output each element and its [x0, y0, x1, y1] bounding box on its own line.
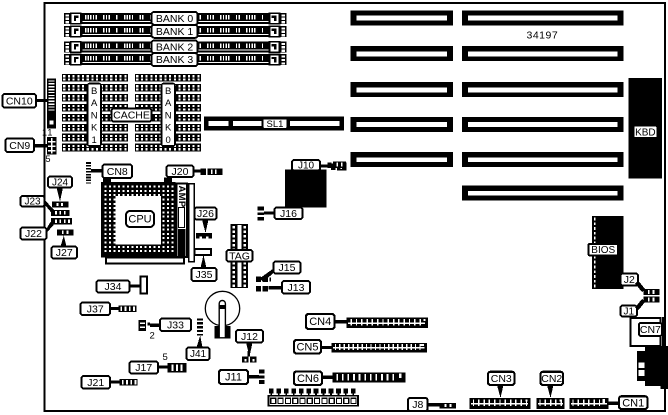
svg-text:CN3: CN3 — [491, 373, 512, 385]
svg-text:J16: J16 — [280, 208, 297, 220]
svg-text:J17: J17 — [135, 362, 152, 374]
svg-text:BANK 1: BANK 1 — [156, 26, 194, 38]
svg-text:J15: J15 — [279, 262, 296, 274]
svg-text:CN6: CN6 — [297, 373, 319, 385]
svg-text:CN9: CN9 — [9, 140, 30, 152]
svg-text:CN7: CN7 — [640, 324, 661, 336]
svg-text:J35: J35 — [196, 269, 213, 281]
svg-text:J22: J22 — [25, 228, 42, 240]
svg-text:J23: J23 — [24, 197, 41, 208]
svg-text:N: N — [165, 110, 172, 121]
svg-text:SL1: SL1 — [267, 119, 284, 130]
svg-text:K: K — [91, 123, 98, 134]
svg-text:CACHE: CACHE — [113, 110, 150, 122]
svg-text:J11: J11 — [225, 372, 242, 384]
svg-text:1: 1 — [92, 135, 97, 146]
svg-text:J33: J33 — [167, 319, 184, 331]
svg-text:N: N — [91, 110, 98, 121]
svg-text:11: 11 — [42, 128, 53, 138]
svg-text:CN8: CN8 — [107, 166, 128, 178]
svg-text:J41: J41 — [190, 349, 207, 360]
svg-text:J37: J37 — [87, 303, 104, 315]
svg-text:CN5: CN5 — [296, 341, 318, 353]
svg-text:BANK 2: BANK 2 — [156, 41, 194, 53]
svg-text:TAG: TAG — [229, 250, 250, 262]
svg-text:34197: 34197 — [527, 30, 559, 42]
svg-text:J13: J13 — [288, 282, 305, 294]
svg-text:CN2: CN2 — [541, 373, 562, 385]
svg-text:J12: J12 — [241, 331, 258, 343]
svg-text:K: K — [165, 123, 172, 134]
svg-text:CN10: CN10 — [6, 95, 33, 107]
svg-text:J20: J20 — [172, 166, 189, 178]
svg-text:J21: J21 — [87, 377, 104, 389]
svg-text:5: 5 — [163, 352, 168, 363]
svg-text:A: A — [91, 98, 98, 109]
svg-text:0: 0 — [166, 135, 171, 146]
svg-text:B: B — [165, 86, 171, 97]
svg-text:J34: J34 — [105, 281, 122, 293]
svg-text:B: B — [91, 86, 97, 97]
svg-text:J8: J8 — [412, 399, 423, 411]
svg-text:J1: J1 — [623, 306, 634, 317]
svg-text:5: 5 — [46, 154, 51, 164]
svg-text:CPU: CPU — [128, 214, 151, 226]
svg-text:J26: J26 — [197, 208, 214, 220]
svg-text:CN4: CN4 — [309, 316, 331, 328]
svg-text:J24: J24 — [52, 177, 69, 188]
svg-text:2: 2 — [150, 331, 155, 342]
svg-text:J2: J2 — [624, 274, 635, 286]
svg-text:KBD: KBD — [635, 127, 656, 138]
svg-text:BANK 3: BANK 3 — [156, 54, 194, 66]
svg-text:A: A — [165, 98, 172, 109]
svg-text:CN1: CN1 — [622, 397, 644, 409]
svg-text:BIOS: BIOS — [591, 245, 615, 256]
svg-text:J27: J27 — [56, 247, 73, 259]
svg-text:BANK 0: BANK 0 — [156, 13, 194, 25]
svg-text:AMP: AMP — [176, 186, 187, 208]
